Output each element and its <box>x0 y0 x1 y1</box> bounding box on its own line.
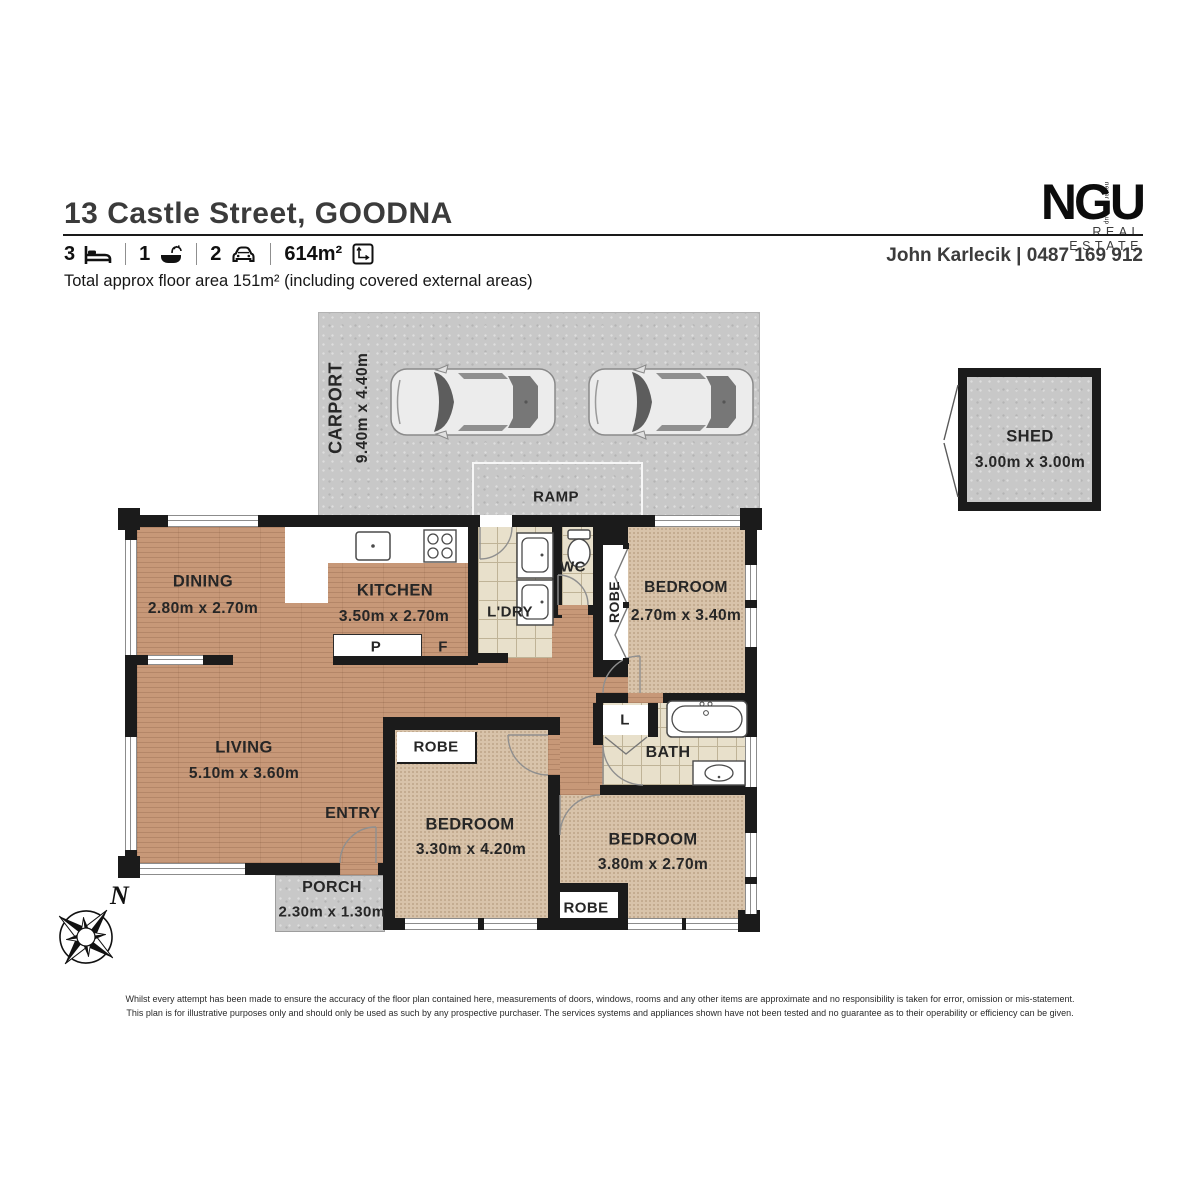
living-label: LIVING <box>215 739 272 758</box>
car-top-view <box>388 364 558 440</box>
ngu-logo: NGU never give up REAL ESTATE <box>1020 180 1143 253</box>
bedroom1-dims: 2.70m x 3.40m <box>631 607 741 625</box>
wall <box>596 527 628 545</box>
bedroom1-label: BEDROOM <box>644 579 728 597</box>
wall <box>548 785 560 795</box>
robe1-label: ROBE <box>606 581 622 623</box>
floorplan-page: 13 Castle Street, GOODNA NGU never give … <box>0 0 1200 1200</box>
porch-label: PORCH <box>302 879 362 897</box>
wall <box>333 656 478 665</box>
land-size: 614m² <box>284 243 342 266</box>
shed-dims: 3.00m x 3.00m <box>975 454 1085 472</box>
wall <box>648 703 658 737</box>
wall <box>600 785 757 795</box>
doorway <box>340 863 378 875</box>
wall <box>596 660 628 677</box>
wall <box>548 775 560 918</box>
window <box>140 863 245 875</box>
carport-dims: 9.40m x 4.40m <box>354 353 372 463</box>
wall <box>118 508 140 530</box>
bedroom3-label: BEDROOM <box>609 831 698 850</box>
wall <box>468 527 478 660</box>
doorway <box>628 693 663 703</box>
ramp-label: RAMP <box>533 489 579 506</box>
laundry-label: L'DRY <box>487 604 533 621</box>
bedroom2-label: BEDROOM <box>426 816 515 835</box>
baths-count: 1 <box>139 243 150 266</box>
wall <box>468 653 508 663</box>
wc-label: WC <box>560 559 586 576</box>
window <box>745 608 757 647</box>
entry-label: ENTRY <box>325 805 381 823</box>
kitchen-bench-return <box>285 563 328 603</box>
vanity-basin <box>692 760 746 786</box>
wall <box>740 508 762 530</box>
wall <box>596 693 628 703</box>
window <box>125 540 137 655</box>
property-stats: 3 1 2 614m² <box>64 242 375 266</box>
wall <box>593 527 603 677</box>
window <box>655 515 740 527</box>
wall <box>383 717 560 730</box>
dining-dims: 2.80m x 2.70m <box>148 600 258 618</box>
disclaimer: Whilst every attempt has been made to en… <box>100 993 1100 1020</box>
wall <box>593 703 603 745</box>
window <box>484 918 537 930</box>
porch-dims: 2.30m x 1.30m <box>279 904 386 921</box>
compass-rose: N <box>48 880 132 975</box>
page-title: 13 Castle Street, GOODNA <box>64 197 453 231</box>
ngu-logo-text: NGU <box>1041 180 1143 224</box>
cars-count: 2 <box>210 243 221 266</box>
robe2-label: ROBE <box>414 739 459 756</box>
doorway <box>558 605 588 615</box>
wall <box>618 883 628 930</box>
stats-separator <box>125 243 126 265</box>
disclaimer-line2: This plan is for illustrative purposes o… <box>100 1007 1100 1021</box>
window <box>168 515 258 527</box>
bathtub <box>666 700 748 738</box>
bath-icon <box>159 243 183 265</box>
wall <box>118 856 140 878</box>
window <box>745 565 757 600</box>
car-icon <box>230 244 257 265</box>
header-divider <box>63 234 1143 236</box>
window <box>148 655 203 665</box>
bedroom2-dims: 3.30m x 4.20m <box>416 841 526 859</box>
cooktop <box>423 529 457 563</box>
land-area-icon <box>351 242 375 266</box>
floor-area-note: Total approx floor area 151m² (including… <box>64 272 533 291</box>
kitchen-label: KITCHEN <box>357 582 433 601</box>
wall <box>550 883 627 892</box>
doorway <box>560 785 600 795</box>
kitchen-dims: 3.50m x 2.70m <box>339 608 449 626</box>
window <box>405 918 478 930</box>
linen-label: L <box>620 712 630 729</box>
carport-label: CARPORT <box>326 362 347 454</box>
dining-label: DINING <box>173 573 233 592</box>
stats-separator <box>270 243 271 265</box>
window <box>745 884 757 914</box>
window <box>686 918 738 930</box>
window <box>628 918 682 930</box>
car-top-view <box>586 364 756 440</box>
wall <box>588 605 603 615</box>
compass-north-letter: N <box>109 881 130 910</box>
bedroom3-dims: 3.80m x 2.70m <box>598 856 708 874</box>
agent-contact: John Karlecik | 0487 169 912 <box>886 245 1143 267</box>
stats-separator <box>196 243 197 265</box>
doorway <box>480 515 512 527</box>
wall <box>383 717 395 930</box>
bed-icon <box>84 244 112 264</box>
fridge-label: F <box>438 639 448 656</box>
disclaimer-line1: Whilst every attempt has been made to en… <box>100 993 1100 1007</box>
window <box>745 737 757 787</box>
window <box>125 737 137 850</box>
robe3-label: ROBE <box>564 900 609 917</box>
kitchen-sink <box>355 531 391 561</box>
living-dims: 5.10m x 3.60m <box>189 765 299 783</box>
doorway <box>548 735 560 775</box>
pantry-label: P <box>371 639 381 656</box>
window <box>745 833 757 877</box>
ngu-logo-tagline: never give up <box>1103 182 1109 225</box>
bath-label: BATH <box>646 744 691 762</box>
beds-count: 3 <box>64 243 75 266</box>
shed-label: SHED <box>1006 428 1053 447</box>
